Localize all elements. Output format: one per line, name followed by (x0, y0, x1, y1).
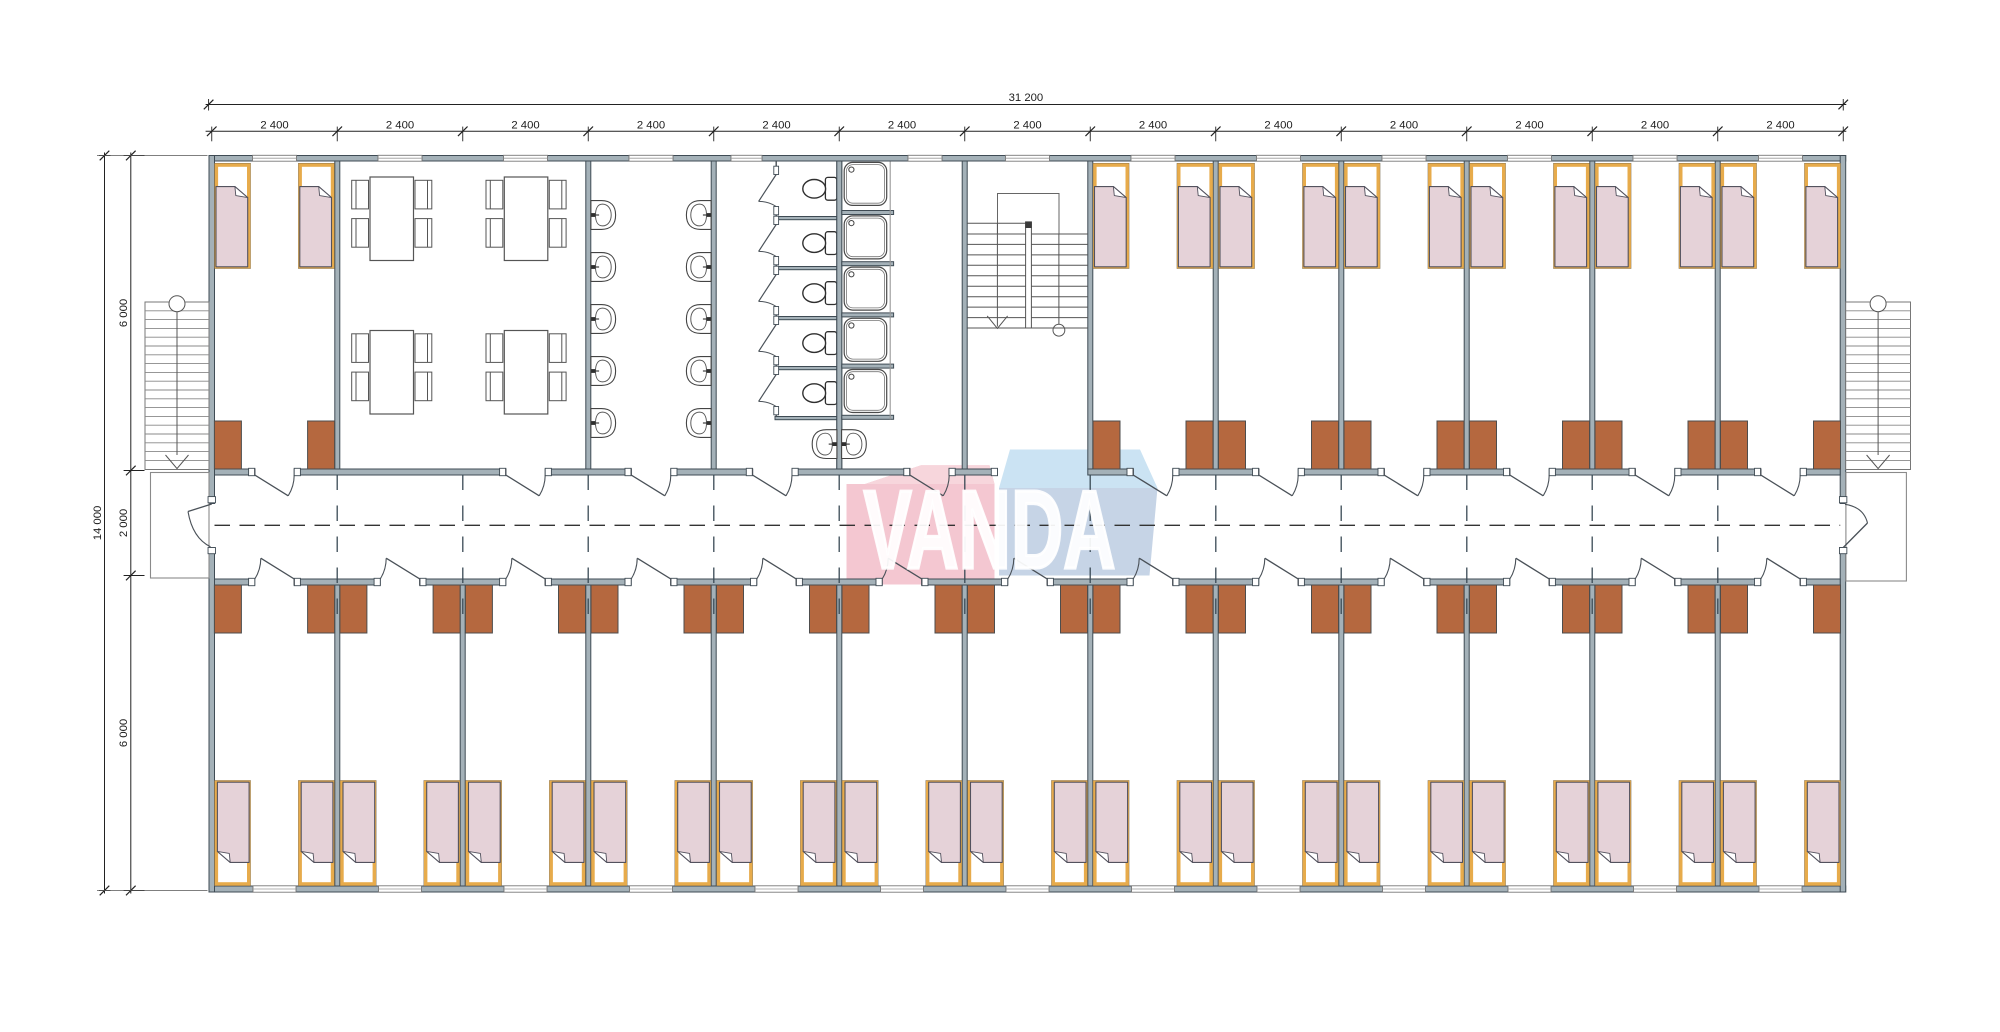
svg-text:2 400: 2 400 (1515, 119, 1543, 131)
svg-text:2 400: 2 400 (1013, 119, 1041, 131)
svg-text:2 400: 2 400 (1766, 119, 1794, 131)
svg-text:2 400: 2 400 (1390, 119, 1418, 131)
svg-text:2 400: 2 400 (762, 119, 790, 131)
svg-text:2 400: 2 400 (888, 119, 916, 131)
svg-text:14 000: 14 000 (92, 506, 104, 541)
svg-text:VANDA: VANDA (864, 468, 1116, 592)
svg-text:2 400: 2 400 (260, 119, 288, 131)
svg-text:2 400: 2 400 (1139, 119, 1167, 131)
svg-text:6 000: 6 000 (118, 299, 130, 327)
svg-text:6 000: 6 000 (118, 719, 130, 747)
svg-text:2 400: 2 400 (386, 119, 414, 131)
svg-text:2 400: 2 400 (511, 119, 539, 131)
svg-text:31 200: 31 200 (1009, 92, 1044, 104)
svg-text:2 400: 2 400 (637, 119, 665, 131)
svg-text:2 000: 2 000 (118, 509, 130, 537)
svg-text:2 400: 2 400 (1641, 119, 1669, 131)
svg-text:2 400: 2 400 (1264, 119, 1292, 131)
